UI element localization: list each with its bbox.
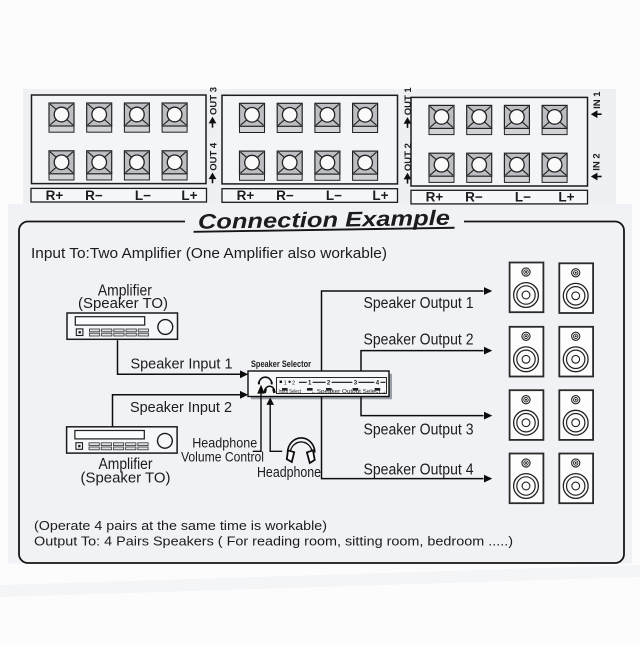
svg-text:Volume Control: Volume Control: [181, 449, 264, 465]
svg-text:Input Select: Input Select: [279, 389, 302, 395]
svg-text:L+: L+: [181, 188, 197, 203]
svg-text:R−: R−: [276, 188, 294, 203]
svg-text:←Speaker Output Select→: ←Speaker Output Select→: [311, 389, 387, 395]
svg-text:Input To:Two Amplifier (One Am: Input To:Two Amplifier (One Amplifier al…: [31, 246, 387, 262]
svg-text:R+: R+: [426, 190, 444, 205]
svg-text:Speaker Output 2: Speaker Output 2: [364, 332, 474, 349]
svg-text:IN 1: IN 1: [592, 91, 603, 109]
svg-text:(Speaker TO): (Speaker TO): [78, 295, 168, 312]
svg-text:OUT 4: OUT 4: [209, 142, 220, 171]
svg-text:Speaker Input 2: Speaker Input 2: [130, 399, 232, 416]
svg-text:R+: R+: [46, 188, 64, 203]
svg-text:(Speaker TO): (Speaker TO): [81, 470, 171, 487]
svg-text:(Operate 4 pairs at the same t: (Operate 4 pairs at the same time is wor…: [34, 518, 327, 533]
svg-text:L+: L+: [558, 190, 574, 205]
svg-text:L+: L+: [372, 188, 388, 203]
svg-text:2: 2: [292, 381, 295, 387]
svg-text:1: 1: [284, 381, 287, 387]
svg-text:OUT 3: OUT 3: [209, 87, 220, 115]
svg-text:L−: L−: [515, 190, 531, 205]
svg-text:Speaker Output 4: Speaker Output 4: [364, 462, 474, 479]
svg-text:R−: R−: [85, 188, 103, 203]
svg-text:Speaker Output 3: Speaker Output 3: [364, 421, 474, 438]
svg-text:R−: R−: [465, 190, 483, 205]
svg-text:Speaker Output 1: Speaker Output 1: [364, 295, 474, 312]
svg-text:L−: L−: [326, 188, 342, 203]
svg-text:R+: R+: [237, 188, 255, 203]
svg-text:Output To: 4 Pairs Speakers (: Output To: 4 Pairs Speakers ( For readin…: [34, 533, 513, 548]
svg-text:Speaker Selector: Speaker Selector: [251, 359, 311, 369]
svg-text:Speaker Input 1: Speaker Input 1: [131, 356, 233, 373]
svg-text:L−: L−: [135, 188, 151, 203]
svg-text:Headphone: Headphone: [257, 464, 321, 481]
svg-text:IN 2: IN 2: [592, 153, 603, 170]
